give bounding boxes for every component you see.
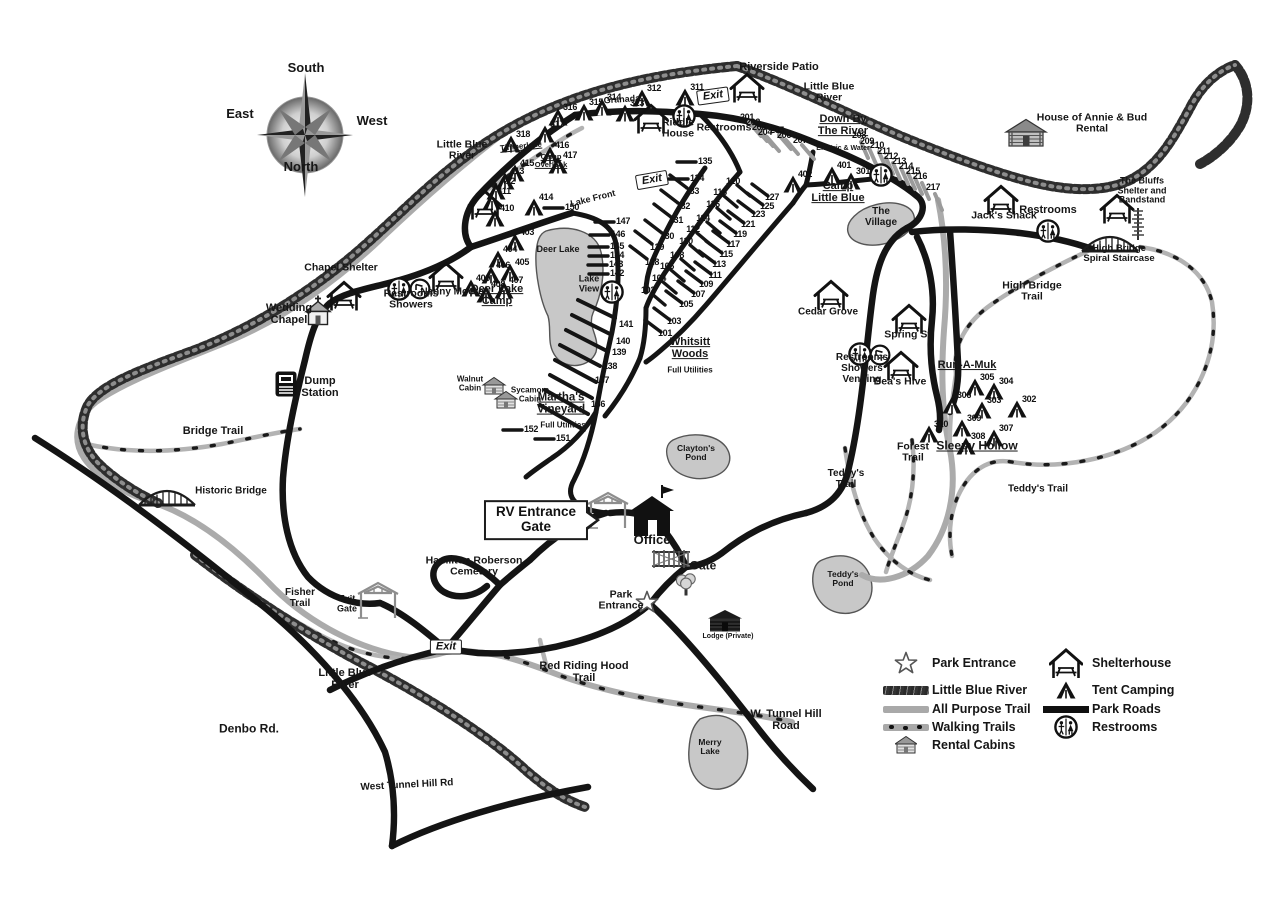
campground-map: SouthEastWestNorthRiverside PatioLittle … <box>0 0 1280 901</box>
campsite-spur-121 <box>728 211 744 223</box>
legend-shelterhouse: Shelterhouse <box>1040 653 1171 673</box>
campsite-spur-108 <box>681 259 694 270</box>
jacks-shack-shelter-icon <box>985 187 1017 215</box>
campsite-spur-102 <box>652 294 665 305</box>
tent-site-410 <box>486 210 505 227</box>
legend-walking-trails: Walking Trails <box>880 717 1016 737</box>
office-building-icon <box>630 485 674 536</box>
tent-site-303 <box>973 402 992 419</box>
spring-st-shelter-icon <box>893 306 925 334</box>
tent-site-401 <box>823 167 842 184</box>
tent-site-402 <box>784 176 803 193</box>
teddys-pond-water <box>813 556 872 613</box>
tent-icon <box>1040 681 1092 699</box>
tent-site-314 <box>593 99 612 116</box>
legend-label: Little Blue River <box>932 683 1027 697</box>
bottom-trail-footprints <box>446 651 792 722</box>
showers-vending-icon <box>871 346 890 365</box>
park-roads-swatch-icon <box>1040 706 1092 713</box>
campsite-spur-113 <box>699 251 715 263</box>
spiral-staircase-icon <box>1132 208 1144 240</box>
walking-trails <box>86 128 1214 672</box>
campsite-spur-129 <box>635 231 652 244</box>
shelterhouse-icon <box>1040 648 1092 679</box>
campsite-spur-106 <box>671 270 684 281</box>
walking-trails-swatch-icon <box>880 724 932 731</box>
all-purpose-trail-swatch-icon <box>880 706 932 713</box>
restrooms-ne-icon <box>1037 220 1058 241</box>
campsite-spur-103 <box>654 308 670 320</box>
tent-site-310 <box>920 426 939 443</box>
lakes <box>536 196 919 789</box>
restrooms-icon <box>1040 715 1092 739</box>
campsite-spur-111 <box>695 262 711 274</box>
campsite-spur-132 <box>661 190 678 203</box>
legend-label: Walking Trails <box>932 720 1016 734</box>
claytons-pond-water <box>667 435 730 479</box>
legend-all-purpose-trail: All Purpose Trail <box>880 699 1031 719</box>
restrooms-deer-lake-icon <box>388 278 409 299</box>
legend-river: Little Blue River <box>880 680 1027 700</box>
legend-label: All Purpose Trail <box>932 702 1031 716</box>
campsite-spur-208 <box>861 142 868 158</box>
campsite-spur-216 <box>922 183 929 199</box>
river-swatch-icon <box>880 686 932 695</box>
legend-label: Rental Cabins <box>932 738 1015 752</box>
legend-label: Park Entrance <box>932 656 1016 670</box>
map-graphics <box>0 0 1280 901</box>
compass-rose <box>257 73 353 197</box>
legend-label: Tent Camping <box>1092 683 1174 697</box>
tent-site-414 <box>525 199 544 216</box>
merry-lake-water <box>689 716 748 790</box>
tent-site-304 <box>985 383 1004 400</box>
legend-restrooms: Restrooms <box>1040 717 1157 737</box>
campsite-spur-209 <box>869 148 876 164</box>
legend-rental-cabins: Rental Cabins <box>880 735 1015 755</box>
main-gate-icon <box>652 550 690 568</box>
campsite-spur-128 <box>630 246 647 259</box>
gate-tree-icon <box>676 574 695 596</box>
restrooms-top-icon <box>673 105 694 126</box>
restrooms-vending-icon <box>849 343 870 364</box>
tent-site-308 <box>957 438 976 455</box>
rental-cabin-icon <box>880 736 932 754</box>
campsite-spur-125 <box>747 193 763 205</box>
campsite-spur-119 <box>720 221 736 233</box>
tent-site-318 <box>502 136 521 153</box>
campsite-spur-123 <box>738 201 754 213</box>
legend-tent-camping: Tent Camping <box>1040 680 1174 700</box>
campsite-spur-127 <box>752 184 768 196</box>
restrooms-down-by-river-icon <box>870 164 891 185</box>
tent-site-305 <box>966 379 985 396</box>
the-bluffs-shelter-icon <box>1101 196 1133 224</box>
park-entrance-star-icon <box>880 651 932 675</box>
legend-label: Restrooms <box>1092 720 1157 734</box>
legend-label: Park Roads <box>1092 702 1161 716</box>
dump-station-icon-icon <box>276 372 297 397</box>
tent-site-311 <box>676 89 695 106</box>
campsite-spur-130 <box>645 220 662 233</box>
legend-park-entrance: Park Entrance <box>880 653 1016 673</box>
the-village-area <box>843 196 919 251</box>
cedar-grove-shelter-icon <box>815 282 847 310</box>
legend-label: Shelterhouse <box>1092 656 1171 670</box>
campsite-spur-109 <box>686 271 702 283</box>
tent-site-302 <box>1008 401 1027 418</box>
campsite-spur-131 <box>654 204 671 217</box>
tent-site-406 <box>482 267 501 284</box>
campsite-spur-107 <box>678 281 694 293</box>
lodge-building-icon <box>708 610 742 632</box>
campsite-spur-118 <box>724 196 737 207</box>
tent-site-408 <box>477 286 496 303</box>
all-purpose-trails <box>77 132 953 722</box>
tent-site-409 <box>462 280 481 297</box>
house-of-annie-bud-cabin-icon <box>1006 120 1046 147</box>
tent-site-404 <box>489 251 508 268</box>
walnut-cabin-icon <box>483 378 505 395</box>
tent-site-307 <box>985 430 1004 447</box>
showers-deer-lake-icon <box>411 280 430 299</box>
walking-trail-footprints <box>86 128 1214 658</box>
tent-site-312 <box>633 90 652 107</box>
tent-site-309 <box>953 420 972 437</box>
tent-site-407 <box>495 282 514 299</box>
restrooms-lake-view-icon <box>601 281 622 302</box>
campsite-spur-133 <box>670 175 687 188</box>
campsite-spur-115 <box>706 241 722 253</box>
